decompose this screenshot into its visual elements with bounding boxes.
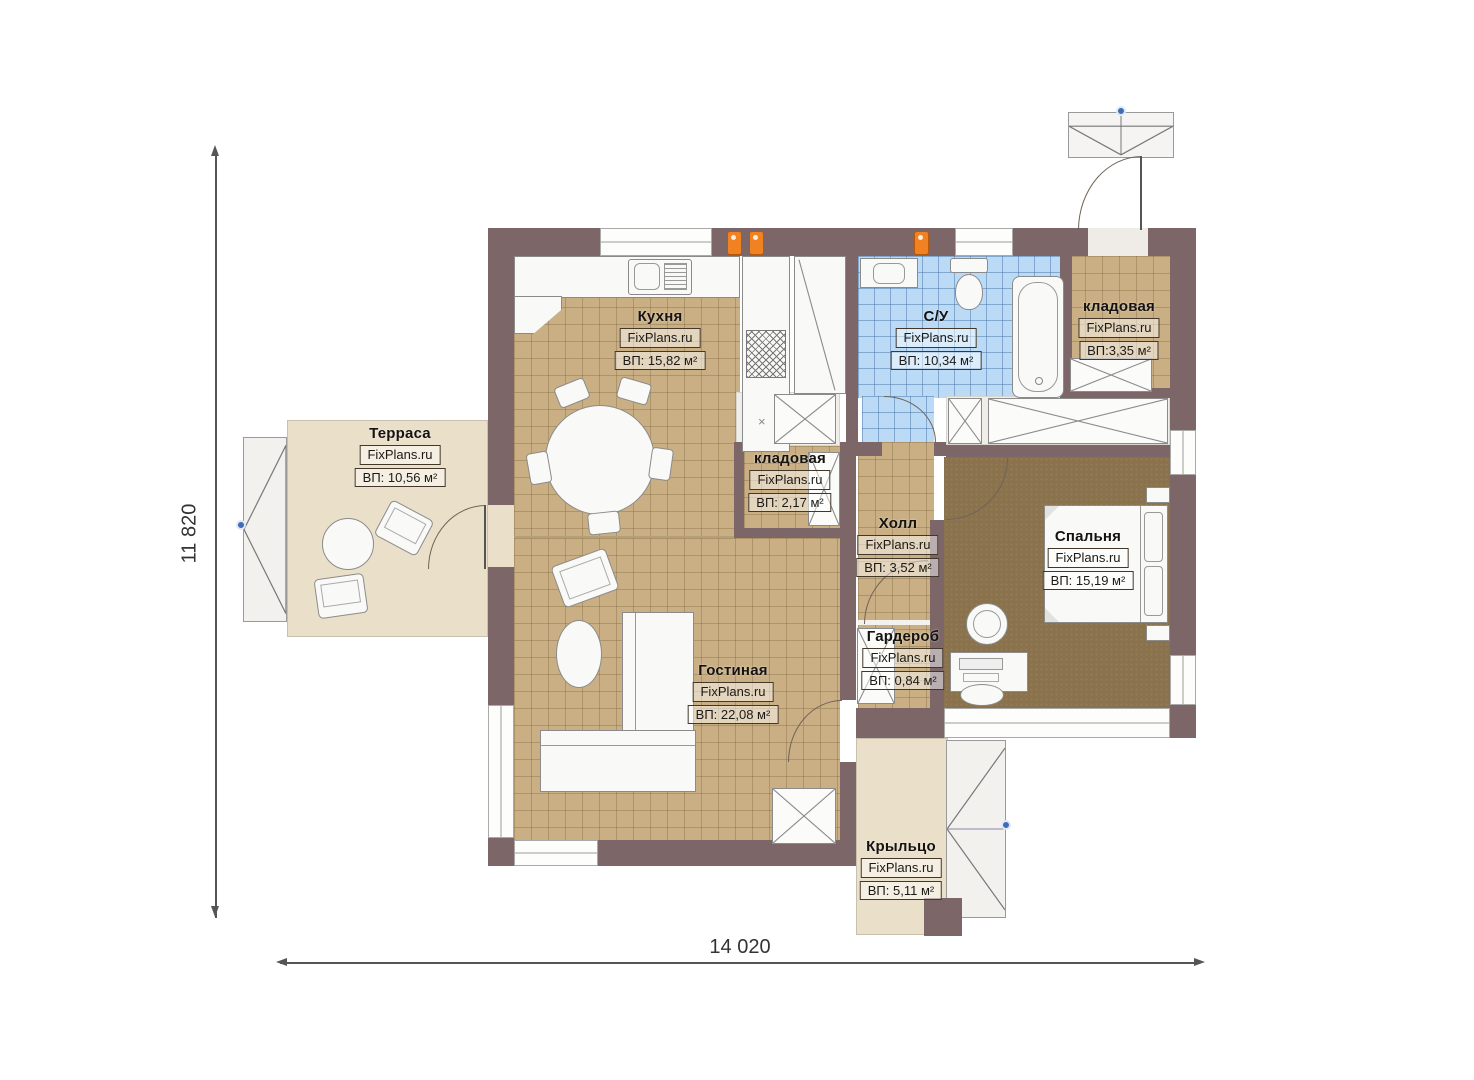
room-label-bathroom: С/У FixPlans.ru ВП: 10,34 м² bbox=[891, 308, 982, 370]
sofa-seat bbox=[540, 730, 696, 792]
wall-right-2 bbox=[1170, 475, 1196, 655]
room-watermark: FixPlans.ru bbox=[1047, 548, 1128, 568]
wall-porch-top bbox=[856, 708, 944, 738]
dimension-arrow bbox=[1194, 958, 1205, 966]
room-watermark: FixPlans.ru bbox=[1078, 318, 1159, 338]
wall-left-1 bbox=[488, 228, 514, 505]
kitchen-living-boundary bbox=[514, 536, 740, 538]
toilet-tank bbox=[950, 258, 988, 273]
plant bbox=[966, 603, 1008, 645]
living-closet bbox=[772, 788, 836, 844]
coffee-table bbox=[556, 620, 602, 688]
room-label-kitchen: Кухня FixPlans.ru ВП: 15,82 м² bbox=[615, 308, 706, 370]
terrace-steps bbox=[243, 437, 287, 622]
room-watermark: FixPlans.ru bbox=[895, 328, 976, 348]
bedroom-window-right-1 bbox=[1170, 430, 1196, 475]
room-label-living: Гостиная FixPlans.ru ВП: 22,08 м² bbox=[688, 662, 779, 724]
room-area: ВП: 10,34 м² bbox=[891, 351, 982, 371]
wall-storage-living bbox=[734, 528, 840, 538]
nightstand bbox=[1146, 487, 1170, 503]
entrance-canopy bbox=[1068, 112, 1174, 158]
dining-chair bbox=[648, 447, 674, 482]
terrace-door-leaf bbox=[484, 505, 486, 569]
wall-bath-left bbox=[846, 256, 858, 442]
porch-steps bbox=[946, 740, 1006, 918]
toilet-bowl bbox=[955, 274, 983, 310]
counter-x-mark: × bbox=[758, 414, 766, 429]
handle-dot bbox=[1116, 106, 1126, 116]
room-name: Терраса bbox=[369, 425, 431, 442]
corridor-closet-long bbox=[988, 398, 1168, 444]
dimension-arrow bbox=[211, 906, 219, 917]
room-label-bedroom: Спальня FixPlans.ru ВП: 15,19 м² bbox=[1043, 528, 1134, 590]
room-name: кладовая bbox=[754, 450, 826, 467]
entrance-door-arc bbox=[1078, 156, 1142, 230]
radiator-icon bbox=[727, 231, 742, 255]
dimension-width: 14 020 bbox=[670, 936, 810, 959]
desk-chair bbox=[960, 684, 1004, 706]
dimension-arrow bbox=[211, 145, 219, 156]
floor-plan: × bbox=[0, 0, 1474, 1080]
room-watermark: FixPlans.ru bbox=[692, 682, 773, 702]
nightstand bbox=[1146, 625, 1170, 641]
room-watermark: FixPlans.ru bbox=[860, 858, 941, 878]
room-name: С/У bbox=[924, 308, 949, 325]
room-area: ВП: 10,56 м² bbox=[355, 468, 446, 488]
sink-drainer bbox=[664, 263, 687, 290]
bathroom-window bbox=[955, 228, 1013, 256]
room-watermark: FixPlans.ru bbox=[749, 470, 830, 490]
bedroom-panoramic-window bbox=[944, 708, 1170, 738]
room-label-storage-mid: кладовая FixPlans.ru ВП: 2,17 м² bbox=[748, 450, 831, 512]
terrace-chair bbox=[313, 573, 368, 620]
dining-table bbox=[545, 405, 655, 515]
living-window-left bbox=[488, 705, 514, 838]
room-name: Крыльцо bbox=[866, 838, 936, 855]
room-area: ВП: 5,11 м² bbox=[860, 881, 942, 901]
radiator-icon bbox=[749, 231, 764, 255]
room-area: ВП: 0,84 м² bbox=[861, 671, 944, 691]
dimension-height: 11 820 bbox=[179, 474, 202, 594]
kitchen-window bbox=[600, 228, 712, 256]
wall-bath-bottom-2 bbox=[934, 442, 946, 456]
kitchen-closet bbox=[774, 394, 836, 444]
kitchen-counter-top bbox=[514, 256, 740, 298]
room-label-porch: Крыльцо FixPlans.ru ВП: 5,11 м² bbox=[860, 838, 942, 900]
room-area: ВП: 15,82 м² bbox=[615, 351, 706, 371]
handle-dot bbox=[1001, 820, 1011, 830]
corridor-closet-small bbox=[948, 398, 982, 444]
room-name: Гостиная bbox=[698, 662, 767, 679]
wall-living-porch bbox=[840, 762, 856, 866]
room-area: ВП: 15,19 м² bbox=[1043, 571, 1134, 591]
room-name: Гардероб bbox=[867, 628, 940, 645]
room-name: кладовая bbox=[1083, 298, 1155, 315]
room-watermark: FixPlans.ru bbox=[862, 648, 943, 668]
wall-left-2 bbox=[488, 567, 514, 705]
bedroom-window-right-2 bbox=[1170, 655, 1196, 705]
dimension-arrow bbox=[276, 958, 287, 966]
stove bbox=[746, 330, 786, 378]
wall-living-hall bbox=[840, 442, 856, 700]
room-watermark: FixPlans.ru bbox=[857, 535, 938, 555]
dining-chair bbox=[587, 510, 621, 535]
wall-bedroom-top bbox=[946, 445, 1170, 457]
room-name: Кухня bbox=[638, 308, 683, 325]
fridge-tall-unit bbox=[794, 256, 846, 394]
terrace-table bbox=[322, 518, 374, 570]
room-area: ВП: 3,52 м² bbox=[856, 558, 939, 578]
dimension-line-horizontal bbox=[280, 962, 1200, 964]
room-area: ВП: 22,08 м² bbox=[688, 705, 779, 725]
wall-top-3 bbox=[1013, 228, 1088, 256]
wall-kitchen-storage bbox=[734, 442, 744, 530]
room-label-wardrobe: Гардероб FixPlans.ru ВП: 0,84 м² bbox=[861, 628, 944, 690]
dimension-line-vertical bbox=[215, 150, 217, 918]
wall-right-corner bbox=[1170, 705, 1196, 738]
bathtub bbox=[1012, 276, 1064, 398]
wall-left-corner bbox=[488, 838, 514, 866]
storage-tr-shelf bbox=[1070, 358, 1152, 392]
room-watermark: FixPlans.ru bbox=[359, 445, 440, 465]
living-window-bottom bbox=[514, 840, 598, 866]
radiator-icon bbox=[914, 231, 929, 255]
entrance-door-leaf bbox=[1140, 156, 1142, 230]
washbasin bbox=[860, 258, 918, 288]
porch-column bbox=[924, 898, 962, 936]
room-watermark: FixPlans.ru bbox=[619, 328, 700, 348]
room-name: Спальня bbox=[1055, 528, 1121, 545]
entrance-door-opening bbox=[1088, 228, 1148, 256]
terrace-door-opening bbox=[488, 505, 514, 567]
wall-bath-bottom-1 bbox=[846, 442, 882, 456]
room-label-storage-tr: кладовая FixPlans.ru ВП:3,35 м² bbox=[1078, 298, 1159, 360]
room-area: ВП: 2,17 м² bbox=[748, 493, 831, 513]
room-label-hall: Холл FixPlans.ru ВП: 3,52 м² bbox=[856, 515, 939, 577]
room-area: ВП:3,35 м² bbox=[1079, 341, 1159, 361]
wall-right-1 bbox=[1170, 228, 1196, 430]
room-label-terrace: Терраса FixPlans.ru ВП: 10,56 м² bbox=[355, 425, 446, 487]
sink-bowl bbox=[634, 263, 660, 290]
handle-dot bbox=[236, 520, 246, 530]
room-name: Холл bbox=[879, 515, 917, 532]
